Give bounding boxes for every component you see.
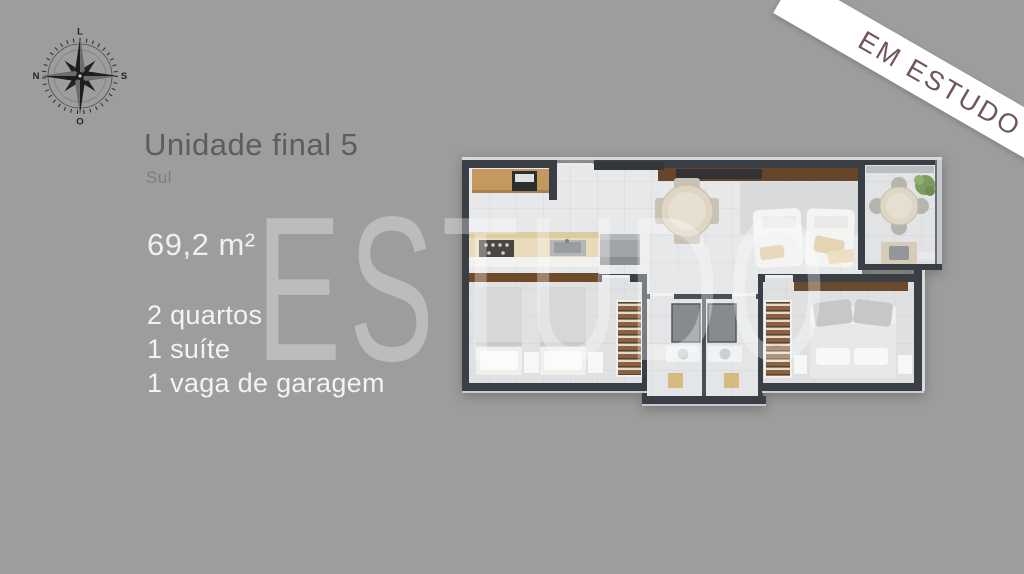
unit-area: 69,2 m² <box>147 227 256 263</box>
floorplan-bedroom-1 <box>476 287 642 376</box>
bath-mat-1 <box>668 373 683 388</box>
status-ribbon-label: EM ESTUDO <box>853 25 1024 143</box>
wardrobe-1 <box>617 301 642 376</box>
tv <box>676 169 762 179</box>
compass-rose: L S O N <box>30 26 130 126</box>
compass-label-west: O <box>76 117 83 127</box>
feature-suite: 1 suíte <box>147 332 385 366</box>
floorplan-render <box>462 154 943 410</box>
shower-1 <box>672 304 700 342</box>
unit-features: 2 quartos 1 suíte 1 vaga de garagem <box>147 298 385 400</box>
unit-orientation: Sul <box>146 168 172 188</box>
suite-nightstand-1 <box>794 355 807 374</box>
floorplan-suite <box>765 299 912 378</box>
single-bed-1 <box>476 287 522 375</box>
single-bed-2 <box>540 287 586 375</box>
stove <box>479 240 514 257</box>
feature-bedrooms: 2 quartos <box>147 298 385 332</box>
wardrobe-suite <box>765 301 791 377</box>
bath-mat-2 <box>724 373 739 388</box>
slide-canvas: { "slide": { "background_color": "#9e9d9… <box>0 0 1024 574</box>
nightstand-1 <box>524 352 539 373</box>
feature-parking: 1 vaga de garagem <box>147 366 385 400</box>
unit-title: Unidade final 5 <box>144 127 358 163</box>
compass-label-east: L <box>77 27 83 38</box>
compass-label-north: N <box>33 71 40 82</box>
double-bed <box>810 299 896 378</box>
nightstand-2 <box>588 352 603 373</box>
suite-nightstand-2 <box>898 355 912 374</box>
shower-2 <box>708 304 736 342</box>
compass-label-south: S <box>121 71 127 82</box>
